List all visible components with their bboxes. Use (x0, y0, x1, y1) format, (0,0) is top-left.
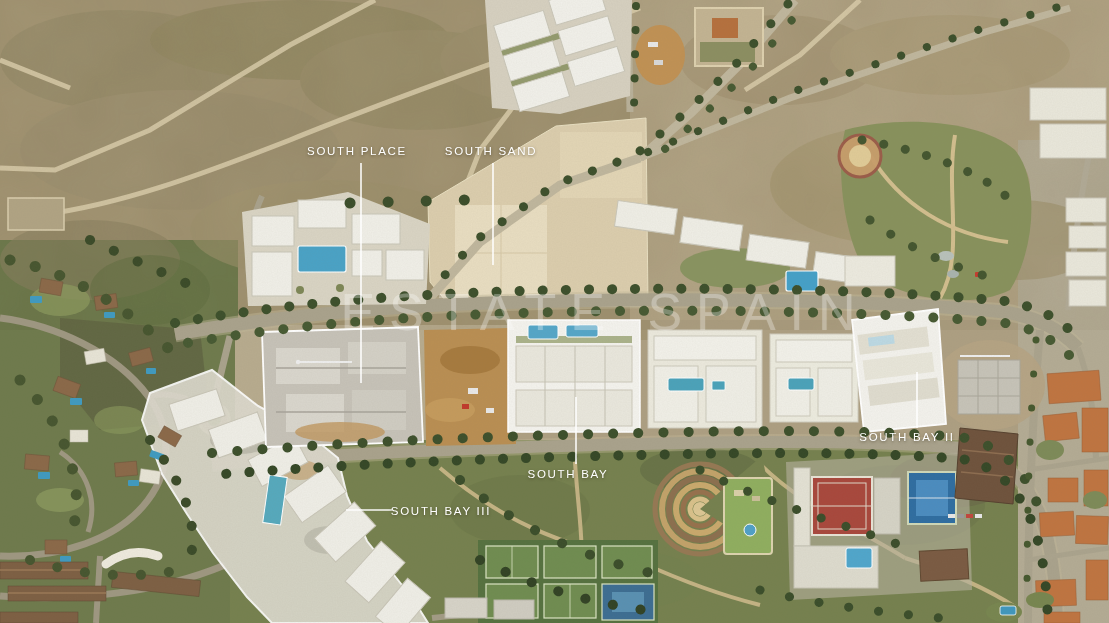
watermark: ESTATE SPAIN (340, 282, 869, 342)
label-south-place: SOUTH PLACE (307, 145, 407, 157)
label-south-bay: SOUTH BAY (528, 468, 609, 480)
aerial-photo: ESTATE SPAIN SOUTH PLACE SOUTH SAND SOUT… (0, 0, 1109, 623)
label-south-bay-ii: SOUTH BAY II (859, 431, 954, 443)
label-south-sand: SOUTH SAND (445, 145, 537, 157)
label-south-bay-iii: SOUTH BAY III (391, 505, 491, 517)
